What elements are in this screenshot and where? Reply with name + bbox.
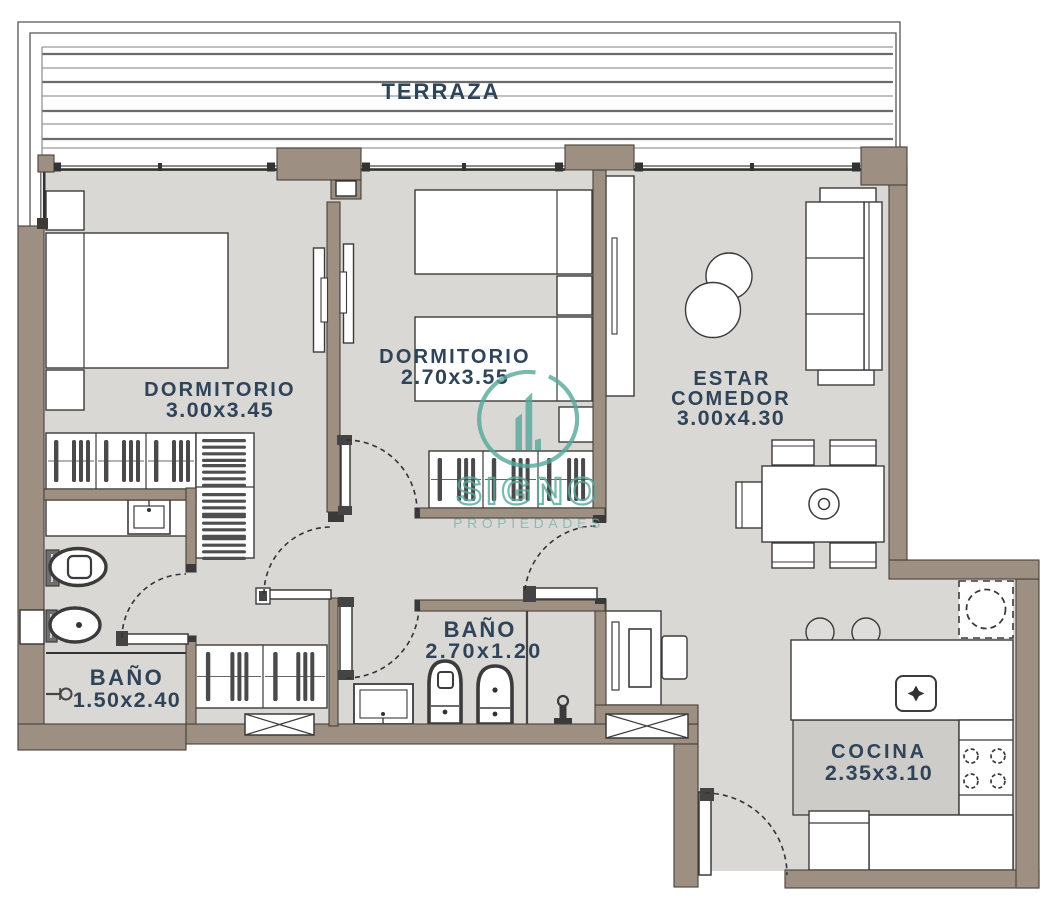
svg-text:3.00x4.30: 3.00x4.30: [677, 406, 785, 430]
svg-text:2.35x3.10: 2.35x3.10: [825, 761, 933, 785]
svg-text:PROPIEDADES: PROPIEDADES: [453, 515, 605, 531]
svg-text:1.50x2.40: 1.50x2.40: [73, 688, 181, 712]
svg-text:TERRAZA: TERRAZA: [381, 79, 500, 104]
svg-text:BAÑO: BAÑO: [90, 665, 164, 690]
svg-text:SIGNO: SIGNO: [457, 471, 602, 513]
svg-text:ESTAR: ESTAR: [693, 368, 770, 390]
svg-text:3.00x3.45: 3.00x3.45: [166, 398, 274, 422]
svg-text:2.70x1.20: 2.70x1.20: [425, 639, 542, 663]
svg-text:COCINA: COCINA: [831, 741, 927, 763]
